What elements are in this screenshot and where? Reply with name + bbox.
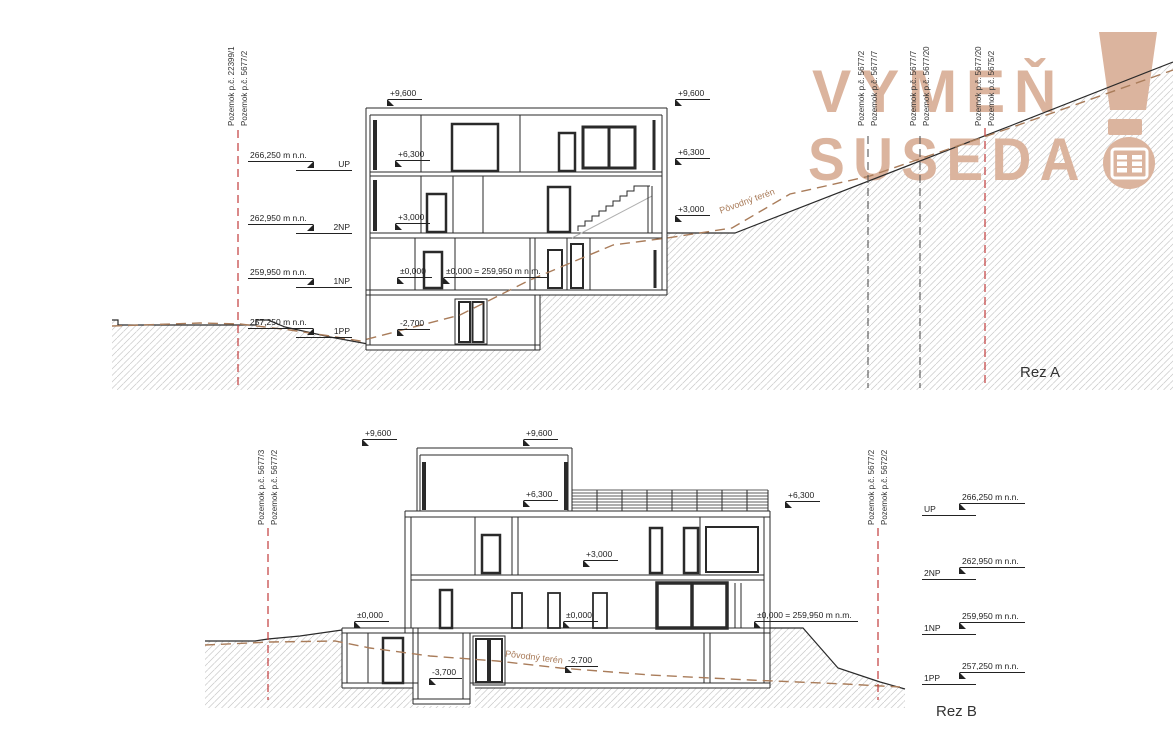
height-mark: +9,600 — [676, 88, 710, 100]
height-mark: ±0,000 = 259,950 m n.m. — [755, 610, 858, 622]
parcel-label: Pozemok p.č. 5677/2 — [240, 51, 250, 126]
height-mark: -2,700 — [566, 655, 598, 667]
height-mark: ±0,000 — [355, 610, 389, 622]
parcel-label: Pozemok p.č. 5677/3 — [257, 450, 267, 525]
elevation-name: UP — [296, 159, 352, 171]
parcel-label: Pozemok p.č. 5677/2 — [270, 450, 280, 525]
height-mark: +9,600 — [363, 428, 397, 440]
elevation-value: 266,250 m n.n. — [960, 492, 1025, 504]
section-b-title: Rez B — [936, 703, 977, 720]
elevation-value: 262,950 m n.n. — [960, 556, 1025, 568]
parcel-label: Pozemok p.č. 5677/20 — [974, 46, 984, 126]
elevation-name: 2NP — [922, 568, 976, 580]
parcel-label: Pozemok p.č. 22399/1 — [227, 46, 237, 126]
height-mark: +6,300 — [524, 489, 558, 501]
height-mark: -2,700 — [398, 318, 430, 330]
parcel-label: Pozemok p.č. 5677/20 — [922, 46, 932, 126]
elevation-name: UP — [922, 504, 976, 516]
height-mark: +9,600 — [388, 88, 422, 100]
section-a-building — [366, 108, 667, 350]
height-mark: +9,600 — [524, 428, 558, 440]
elevation-name: 1PP — [296, 326, 352, 338]
elevation-name: 2NP — [296, 222, 352, 234]
parcel-label: Pozemok p.č. 5672/2 — [880, 450, 890, 525]
section-a-title: Rez A — [1020, 364, 1060, 381]
height-mark: +6,300 — [786, 490, 820, 502]
height-mark: +3,000 — [676, 204, 710, 216]
linework-layer — [0, 0, 1173, 748]
parcel-label: Pozemok p.č. 5677/2 — [867, 450, 877, 525]
height-mark: +3,000 — [584, 549, 618, 561]
parcel-label: Pozemok p.č. 5677/7 — [909, 51, 919, 126]
height-mark: +6,300 — [396, 149, 430, 161]
height-mark: ±0,000 = 259,950 m n.m. — [444, 266, 547, 278]
elevation-name: 1NP — [296, 276, 352, 288]
height-mark: ±0,000 — [398, 266, 432, 278]
height-mark: ±0,000 — [564, 610, 598, 622]
elevation-name: 1PP — [922, 673, 976, 685]
height-mark: -3,700 — [430, 667, 462, 679]
height-mark: +3,000 — [396, 212, 430, 224]
parcel-label: Pozemok p.č. 5675/2 — [987, 51, 997, 126]
elevation-name: 1NP — [922, 623, 976, 635]
drawing-canvas: VYMEŇ SUSEDA — [0, 0, 1173, 748]
height-mark: +6,300 — [676, 147, 710, 159]
elevation-value: 259,950 m n.n. — [960, 611, 1025, 623]
elevation-value: 257,250 m n.n. — [960, 661, 1025, 673]
parcel-label: Pozemok p.č. 5677/2 — [857, 51, 867, 126]
parcel-label: Pozemok p.č. 5677/7 — [870, 51, 880, 126]
